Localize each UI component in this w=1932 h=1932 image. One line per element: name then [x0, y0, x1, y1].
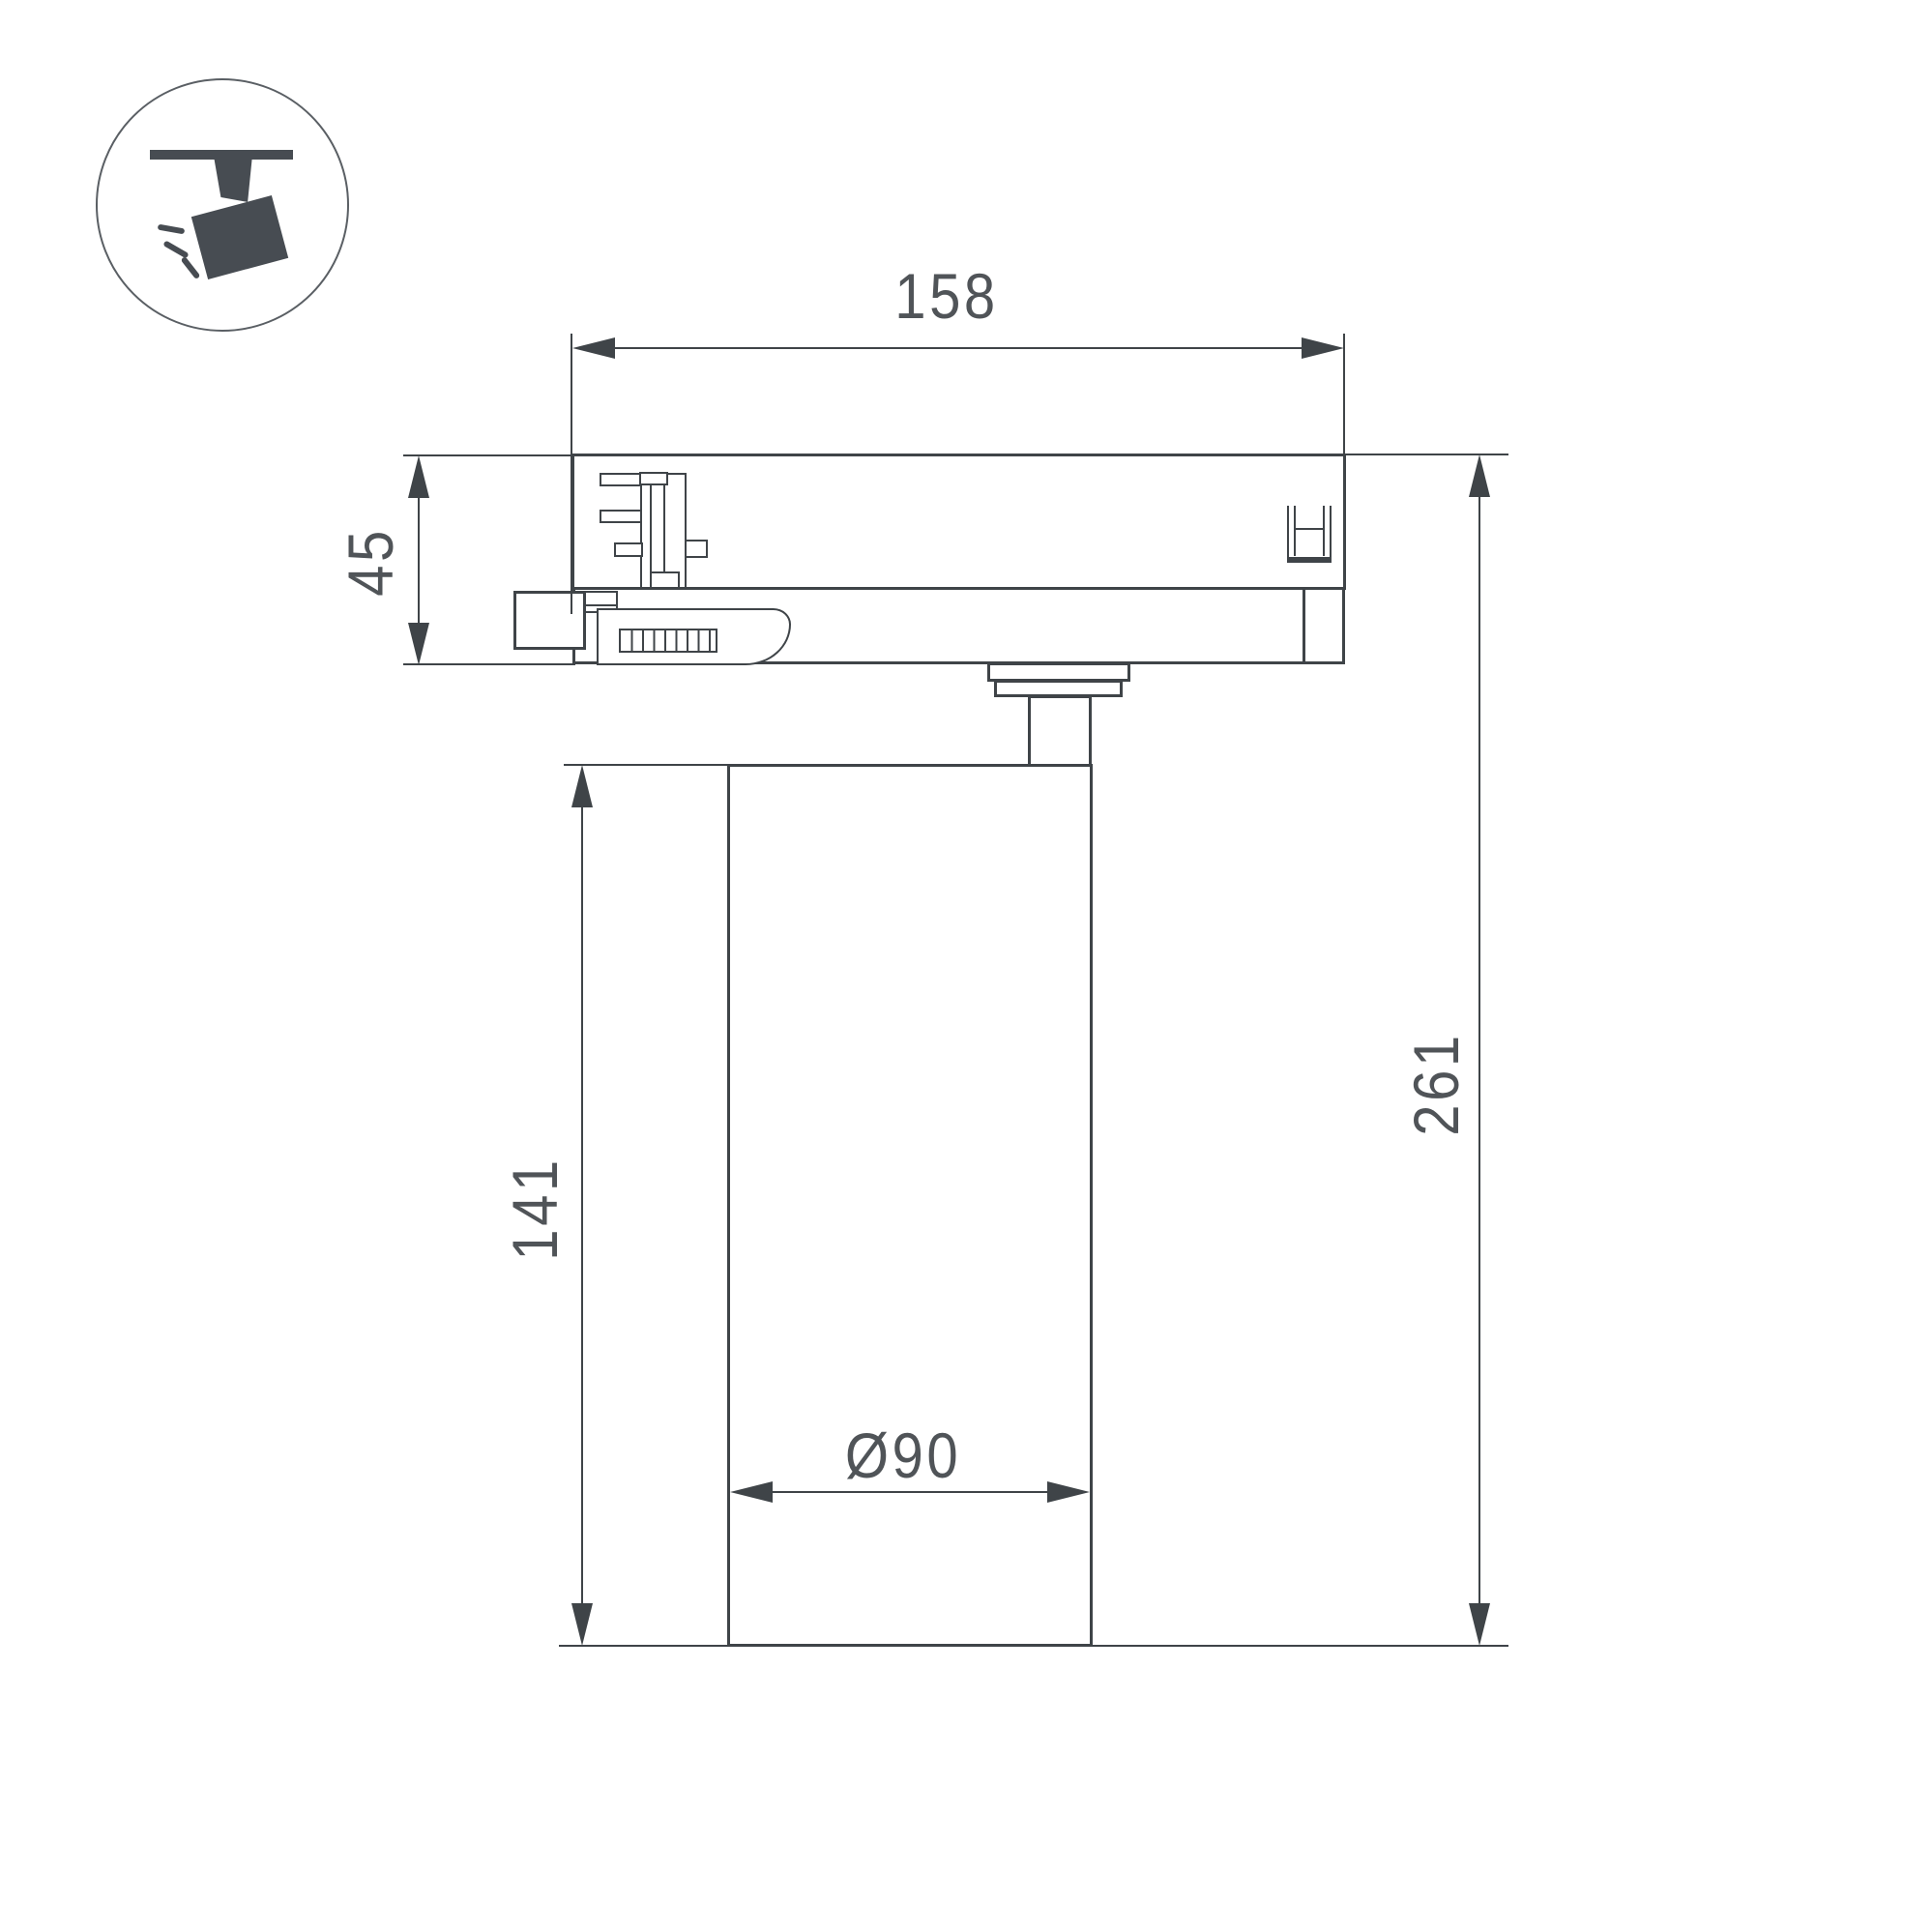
contact-pin	[650, 483, 665, 573]
arrowhead-left	[572, 337, 615, 359]
dimension-line	[581, 774, 583, 1638]
clamp-wall	[1287, 506, 1289, 563]
contact-prong-top	[600, 473, 642, 486]
dimension-label: 158	[870, 264, 1023, 328]
arrowhead-up	[571, 765, 593, 807]
dimension-line	[740, 1491, 1080, 1493]
latch-box	[513, 591, 586, 650]
adapter-main-box	[571, 454, 1346, 590]
clamp-wall	[1323, 506, 1325, 556]
drawing-canvas: 158 45 141 261 Ø90	[0, 0, 1932, 1932]
dimension-line	[1478, 463, 1480, 1638]
latch-connector-line	[586, 604, 616, 606]
clamp-wall	[1294, 506, 1296, 556]
extension-line	[571, 334, 572, 614]
neck-stem	[1028, 695, 1092, 768]
clamp-wall	[1330, 506, 1332, 563]
housing-end-divider	[1303, 590, 1305, 662]
dimension-line	[580, 347, 1336, 349]
arrowhead-up	[408, 455, 429, 498]
clamp-mid-line	[1294, 528, 1325, 530]
clamp-bottom	[1287, 557, 1332, 563]
arrowhead-down	[571, 1603, 593, 1646]
dimension-label: 45	[338, 485, 402, 638]
arrowhead-right	[1047, 1481, 1090, 1503]
contact-prong-middle	[600, 510, 642, 523]
dimension-label: 141	[503, 1132, 567, 1285]
icon-circle	[96, 78, 349, 332]
lamp-body-cylinder	[727, 764, 1093, 1647]
arrowhead-up	[1469, 454, 1490, 497]
dimension-label: Ø90	[827, 1423, 980, 1487]
arrowhead-left	[730, 1481, 773, 1503]
dimension-label: 261	[1404, 1008, 1468, 1160]
arrowhead-right	[1302, 337, 1344, 359]
arrowhead-down	[1469, 1603, 1490, 1646]
contact-prong-bottom	[614, 542, 643, 557]
lever-grip-ribs	[622, 630, 715, 651]
contact-foot	[650, 571, 680, 589]
extension-line	[559, 1645, 1508, 1647]
neck-step-1	[987, 662, 1130, 682]
arrowhead-down	[408, 623, 429, 665]
contact-step-right	[685, 540, 708, 558]
